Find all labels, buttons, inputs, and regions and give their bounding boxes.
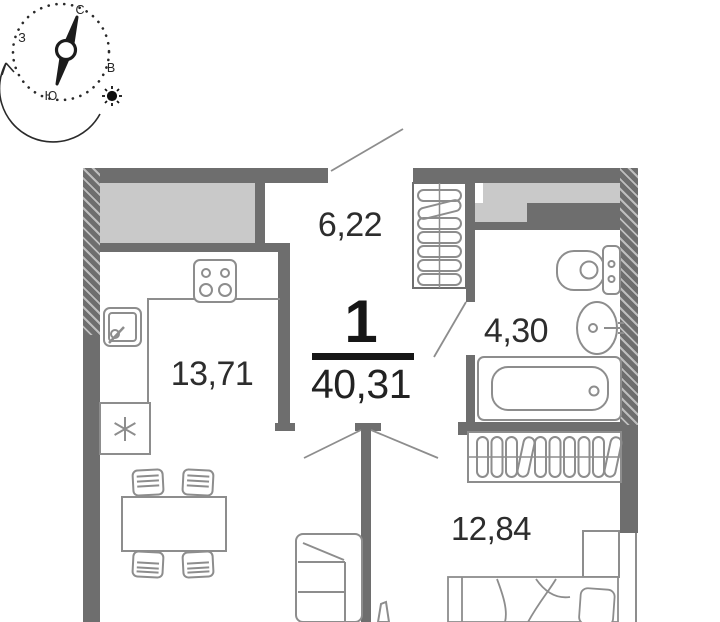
entrance-door-swing-line xyxy=(331,129,403,171)
compass-east-label: В xyxy=(107,61,115,75)
chair-icon xyxy=(182,551,213,578)
wall-top-right xyxy=(413,168,622,183)
chair-icon xyxy=(132,551,163,578)
dining-table-icon xyxy=(122,497,226,551)
wall-left-exterior-lower xyxy=(83,335,100,622)
toilet-icon xyxy=(557,246,620,294)
wall-right-exterior-lower xyxy=(620,425,638,533)
fridge-icon xyxy=(100,403,150,454)
total-area-divider-line xyxy=(312,353,414,360)
bathroom-shaft-wall-strip xyxy=(472,222,620,230)
chair-icon xyxy=(182,469,213,496)
bathroom-area-label: 4,30 xyxy=(466,312,566,351)
wall-kitchen-north xyxy=(98,243,290,252)
kitchen-niche-fill xyxy=(100,183,255,243)
wall-bathroom-west-upper xyxy=(466,183,475,302)
wall-right-exterior-upper xyxy=(620,168,638,425)
bathroom-shaft-wall-band xyxy=(527,203,620,222)
bathroom-sink-icon xyxy=(577,302,624,354)
floor-plan: 6,22 13,71 4,30 12,84 1 40,31 С В Ю З xyxy=(0,0,720,622)
bathroom-shaft-fill-step xyxy=(472,203,527,222)
rooms-count-label: 1 xyxy=(306,287,416,356)
bedroom-wardrobe-icon xyxy=(468,432,623,482)
wall-top-left xyxy=(96,168,328,183)
wall-left-exterior-upper xyxy=(83,168,100,335)
compass-rose-icon: С В Ю З xyxy=(0,3,122,142)
bathtub-icon xyxy=(478,357,621,420)
chair-icon xyxy=(132,469,163,496)
hallway-area-label: 6,22 xyxy=(300,206,400,245)
kitchen-sink-icon xyxy=(104,308,141,346)
bathroom-shaft-fill-top xyxy=(483,183,620,203)
total-area-label: 40,31 xyxy=(306,361,416,408)
stove-icon xyxy=(194,260,236,302)
bedroom-area-label: 12,84 xyxy=(441,510,541,548)
wall-bathroom-west-lower xyxy=(466,355,475,425)
opening-callout-right-line xyxy=(371,430,438,458)
compass-south-label: Ю xyxy=(45,89,58,103)
curved-arrow-icon xyxy=(0,63,100,142)
kitchen-living-area-label: 13,71 xyxy=(162,355,262,394)
compass-west-label: З xyxy=(18,31,26,45)
tv-icon xyxy=(378,602,389,622)
wall-kitchen-east xyxy=(278,252,290,430)
asterisk-icon xyxy=(115,417,136,441)
compass-north-label: С xyxy=(75,3,84,17)
nightstand-icon xyxy=(583,531,619,577)
wall-kitchen-east-cap xyxy=(275,423,295,431)
bed-icon xyxy=(448,577,618,622)
wall-bathroom-south xyxy=(458,422,638,435)
sun-icon xyxy=(102,86,122,106)
opening-callout-left-line xyxy=(304,430,361,458)
bathroom-door-swing-line xyxy=(434,302,466,357)
sofa-icon xyxy=(296,534,362,622)
wall-room-divider xyxy=(361,429,371,622)
hallway-closet-icon xyxy=(413,183,466,288)
wall-niche-right xyxy=(255,183,265,245)
